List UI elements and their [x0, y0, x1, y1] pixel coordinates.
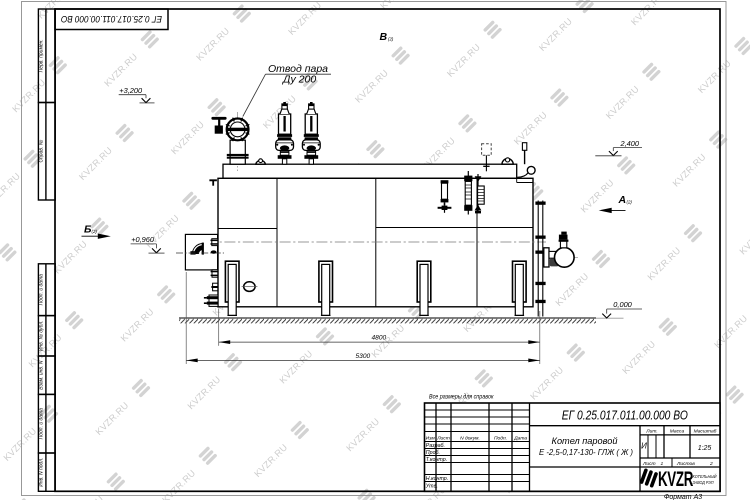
- svg-text:+0,960: +0,960: [131, 235, 155, 244]
- svg-text:(2): (2): [92, 229, 98, 234]
- svg-text:2,400: 2,400: [620, 139, 640, 148]
- svg-text:Проб.: Проб.: [426, 450, 440, 456]
- svg-text:Лит.: Лит.: [645, 429, 657, 435]
- svg-text:KVZR: KVZR: [658, 467, 693, 491]
- svg-text:Лист: Лист: [436, 436, 450, 442]
- svg-text:(2): (2): [388, 37, 394, 42]
- svg-text:ЗАВОД РЭП: ЗАВОД РЭП: [693, 480, 715, 485]
- svg-text:Формат А3: Формат А3: [664, 494, 702, 500]
- svg-text:Изм: Изм: [426, 436, 436, 442]
- svg-text:Котел паровой: Котел паровой: [552, 436, 618, 446]
- svg-text:В: В: [380, 31, 388, 43]
- svg-text:5300: 5300: [356, 353, 371, 360]
- svg-text:ЕГ 0.25.017.011.00.000 ВО: ЕГ 0.25.017.011.00.000 ВО: [61, 14, 162, 24]
- svg-text:+3,200: +3,200: [119, 86, 143, 95]
- svg-text:Масса: Масса: [670, 429, 685, 435]
- svg-text:Разраб.: Разраб.: [426, 443, 445, 449]
- svg-text:Подп.: Подп.: [494, 436, 507, 442]
- svg-text:Лист: Лист: [642, 461, 656, 467]
- svg-text:Масштаб: Масштаб: [694, 429, 717, 435]
- svg-text:И: И: [641, 442, 647, 451]
- svg-text:Утв.: Утв.: [426, 484, 438, 490]
- svg-text:Дата: Дата: [513, 436, 527, 442]
- svg-text:ЕГ 0.25.017.011.00.000 ВО: ЕГ 0.25.017.011.00.000 ВО: [562, 407, 688, 422]
- svg-text:Инв. N подл.: Инв. N подл.: [38, 457, 44, 486]
- svg-text:Инв. № дубл.: Инв. № дубл.: [38, 320, 44, 351]
- svg-text:Взам. инв. N: Взам. инв. N: [38, 360, 44, 390]
- svg-text:КОТЕЛЬНЫЙ: КОТЕЛЬНЫЙ: [693, 472, 718, 479]
- svg-text:Н.контр.: Н.контр.: [426, 476, 448, 482]
- svg-text:1:25: 1:25: [698, 445, 712, 452]
- svg-text:Подп. и дата: Подп. и дата: [38, 408, 44, 440]
- svg-text:А: А: [618, 194, 627, 206]
- svg-text:Е -2,5-0,17-130- ГЛЖ ( Ж ): Е -2,5-0,17-130- ГЛЖ ( Ж ): [539, 447, 633, 457]
- svg-text:Справ. №: Справ. №: [38, 139, 44, 162]
- svg-text:Ду 200: Ду 200: [282, 74, 316, 86]
- svg-text:(2): (2): [627, 200, 633, 205]
- svg-text:Подп. и дата: Подп. и дата: [38, 274, 44, 306]
- svg-text:2: 2: [709, 461, 713, 467]
- svg-text:4800: 4800: [372, 335, 387, 342]
- svg-text:Т.контр.: Т.контр.: [426, 457, 447, 463]
- svg-text:N докум.: N докум.: [460, 436, 480, 442]
- svg-text:Все размеры для справок: Все размеры для справок: [429, 392, 494, 400]
- svg-text:Перв. примен.: Перв. примен.: [38, 39, 44, 72]
- svg-text:0,000: 0,000: [613, 300, 632, 309]
